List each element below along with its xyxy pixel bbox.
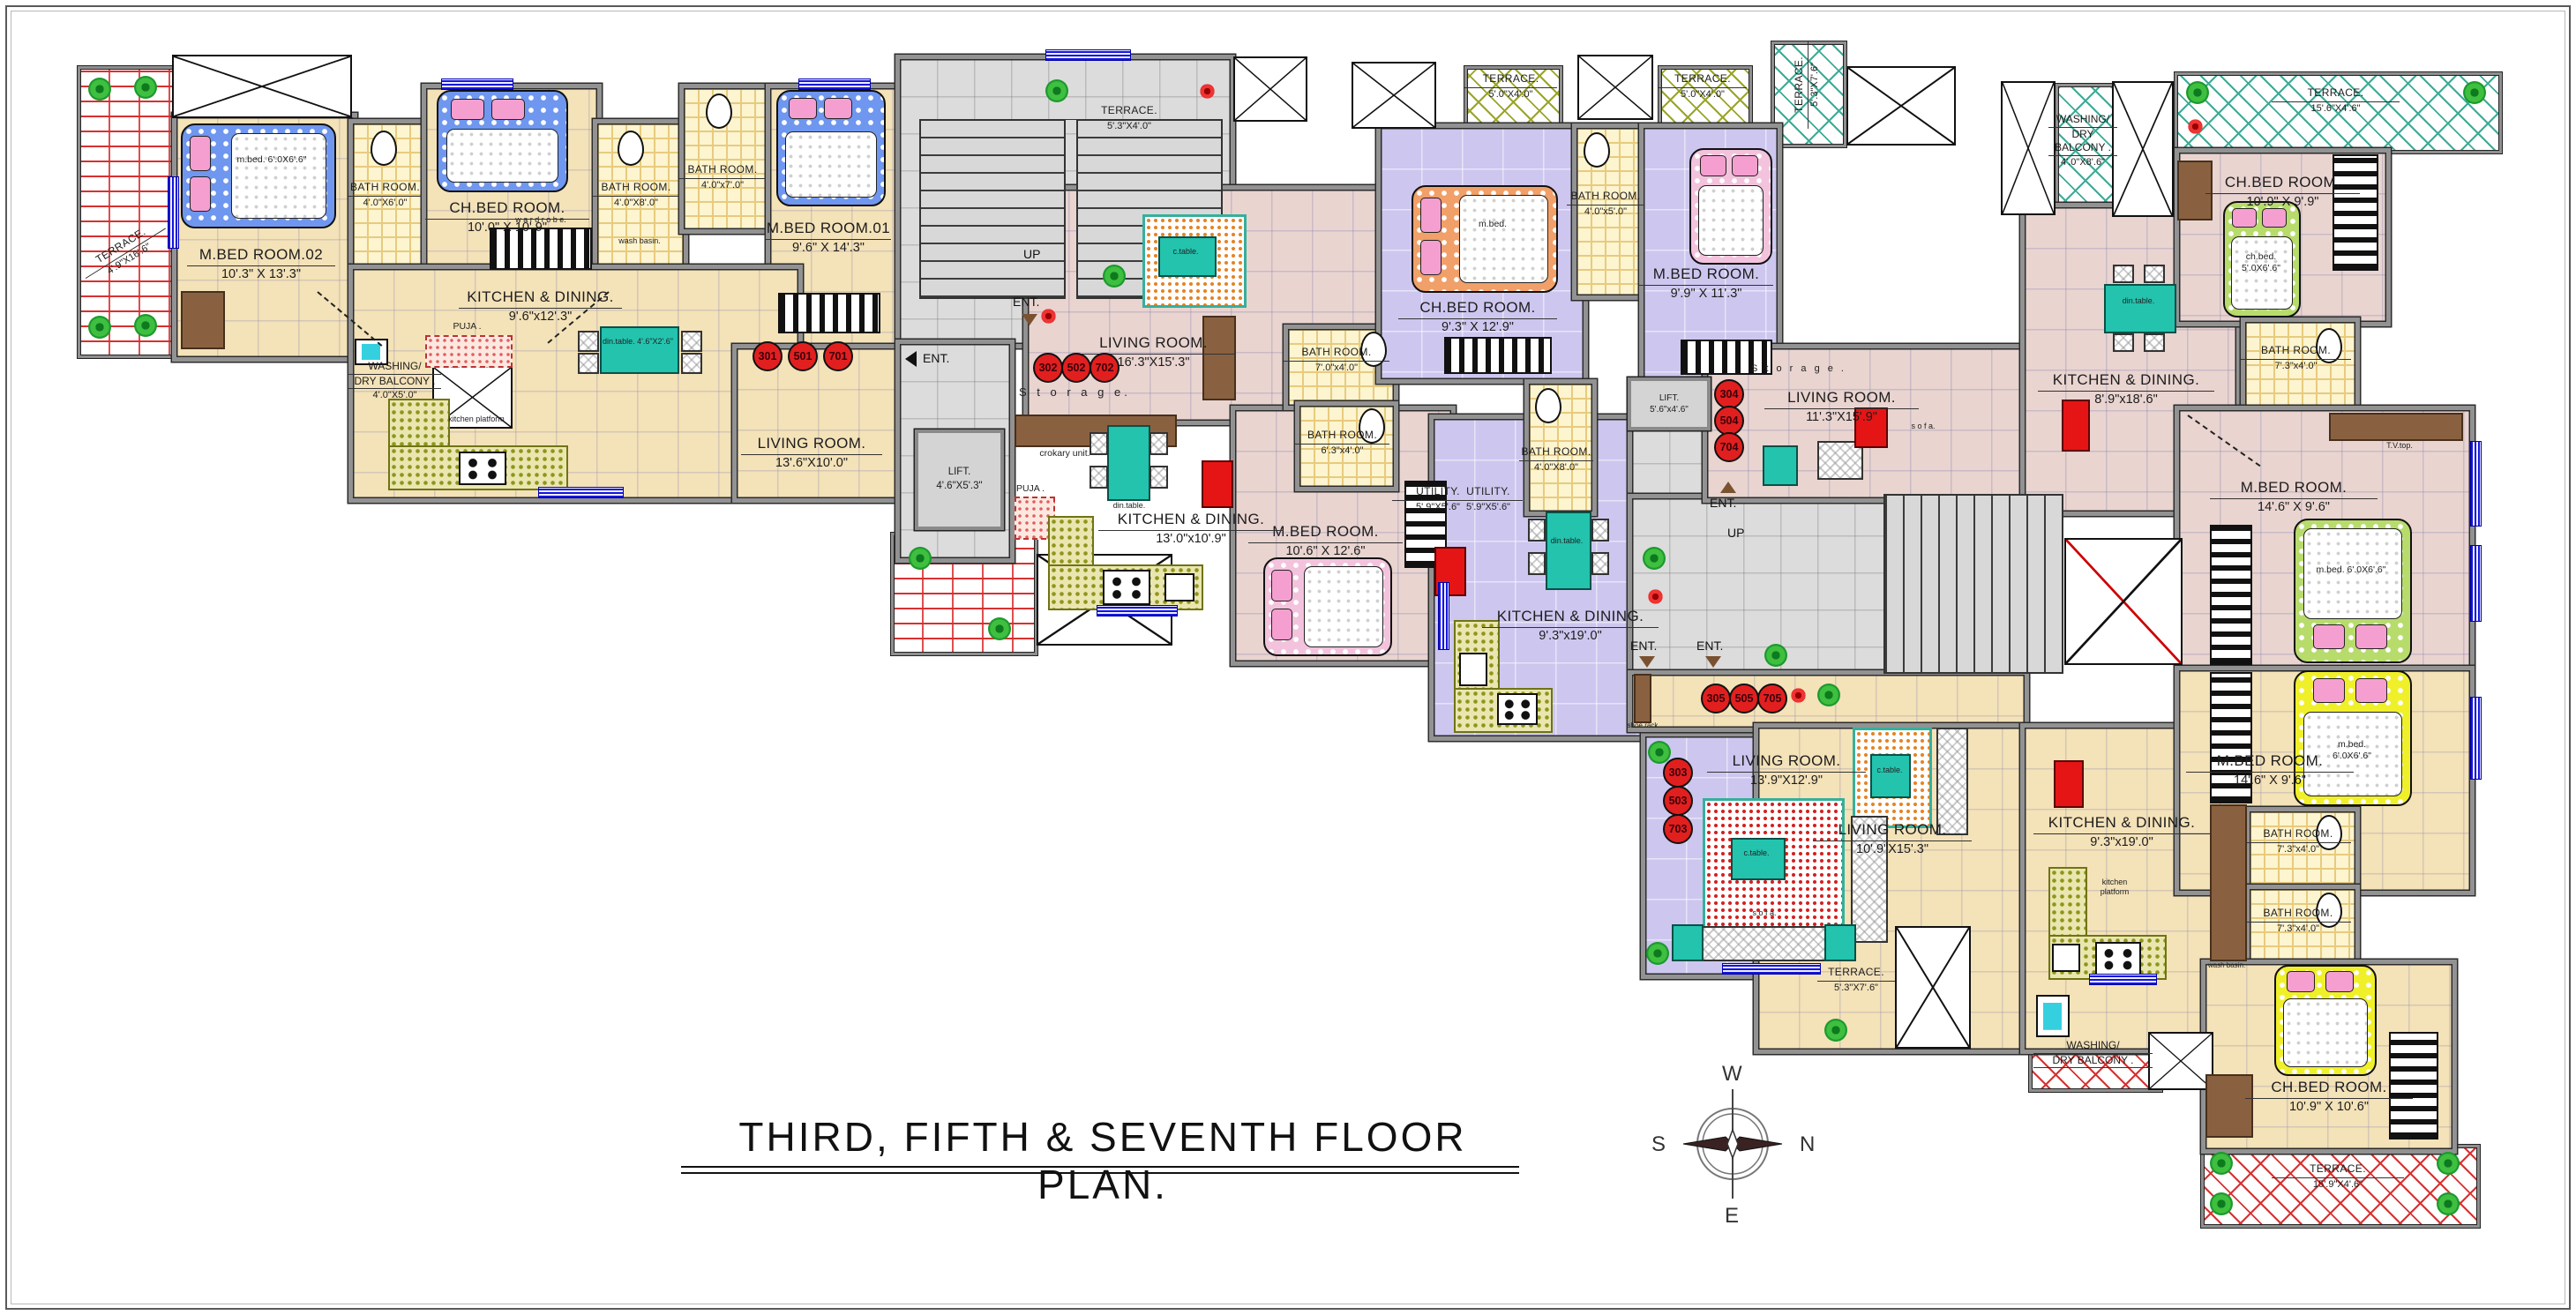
storage-label-302: S t o r a g e. [1019, 385, 1131, 399]
flower-icon [1791, 688, 1806, 703]
dining-table [1546, 512, 1591, 590]
dining-table [2104, 284, 2176, 333]
window [538, 487, 624, 498]
chair [2144, 265, 2165, 283]
window [1722, 963, 1821, 975]
room-label-kitchen-305: KITCHEN & DINING.9'.3"x19'.0" [2033, 813, 2210, 851]
entry-arrow-icon [1639, 656, 1655, 668]
up-label-left: UP [1023, 247, 1040, 261]
duct-shaft [1233, 56, 1307, 122]
room-label-bath1-301: BATH ROOM.4'.0"X6'.0" [348, 181, 422, 209]
sofa [1936, 728, 1968, 835]
unit-number-505: 505 [1729, 684, 1759, 714]
chair [2113, 333, 2134, 352]
room-label-kitchen-301: KITCHEN & DINING.9'.6"x12'.3" [459, 288, 622, 325]
plant-icon [1045, 79, 1068, 102]
room-label-chbed-304: CH.BED ROOM.10'.9" X 9'.9" [2205, 173, 2360, 211]
room-label-mbed01: M.BED ROOM.019'.6" X 14'.3" [766, 219, 891, 257]
unit-number-302: 302 [1033, 353, 1063, 383]
stove-icon [459, 452, 506, 485]
stove-icon [2095, 942, 2141, 975]
ent-label-stairs-left: ENT. [1013, 295, 1039, 309]
stove-icon [1103, 570, 1150, 605]
lobby-right [1628, 494, 1897, 679]
window [1438, 582, 1449, 650]
flower-icon [1648, 589, 1663, 604]
plant-icon [1643, 547, 1666, 570]
entry-arrow-icon [905, 351, 917, 367]
tv-unit [2329, 413, 2463, 441]
unit-number-304: 304 [1714, 379, 1744, 409]
plant-icon [134, 314, 157, 337]
room-label-kitchen-304: KITCHEN & DINING.8'.9"x18'.6" [2038, 370, 2214, 408]
unit-number-503: 503 [1663, 786, 1693, 816]
bed-chbed-303 [1412, 185, 1558, 293]
ent-label-right-core: ENT. [1710, 496, 1736, 510]
sofa-label: s o f a. [1897, 422, 1950, 431]
bed-label: m.bed. [1457, 219, 1528, 230]
wardrobe [2210, 525, 2252, 665]
plant-icon [1103, 265, 1126, 288]
room-label-bath1-303: BATH ROOM.4'.0"x5'.0" [1567, 190, 1644, 218]
fridge [2054, 760, 2084, 808]
window [2470, 441, 2482, 527]
plant-icon [134, 76, 157, 99]
sink-icon [2052, 944, 2080, 972]
dining-table-label: din.table. [1537, 536, 1597, 546]
window [1045, 49, 1131, 61]
flower-icon [1041, 309, 1056, 324]
unit-number-303: 303 [1663, 758, 1693, 788]
wardrobe-label: w a r d r o b e. [492, 215, 589, 225]
lift-left: LIFT.4'.6"X5'.3" [915, 430, 1004, 530]
duct-shaft [2112, 81, 2174, 217]
plant-icon [2437, 1192, 2460, 1215]
plant-icon [1646, 942, 1669, 965]
unit-number-705: 705 [1757, 684, 1787, 714]
center-table [1731, 838, 1786, 880]
duct-shaft [172, 55, 352, 118]
floor-plan-sheet: TERRACE.4'.9"X16'.6" m.bed. 6'.0X6'.6" M… [0, 0, 2576, 1315]
center-table [1763, 445, 1798, 486]
compass-west: W [1722, 1062, 1742, 1087]
dining-table [600, 326, 679, 374]
room-label-living-301: LIVING ROOM.13'.6"X10'.0" [741, 434, 882, 472]
duct-shaft [1577, 55, 1653, 120]
sofa [1701, 926, 1826, 961]
wardrobe [2333, 154, 2378, 271]
bed-chbed-305 [2274, 965, 2377, 1076]
shoe-rack-label: shoe rack [1625, 721, 1660, 730]
chair [1528, 552, 1546, 575]
plant-icon [88, 78, 111, 101]
wash-balcony-301-label: WASHING/DRY BALCONY .4'.0"X5'.0" [348, 360, 441, 401]
bed-mbed01 [776, 90, 886, 206]
toilet-icon [1535, 388, 1561, 423]
plant-icon [2463, 81, 2486, 104]
wardrobe [778, 293, 880, 333]
window [2470, 697, 2482, 780]
room-label-chbed-305: CH.BED ROOM.10'.9" X 10'.6" [2245, 1078, 2413, 1116]
entry-arrow-icon [1720, 482, 1736, 493]
puja-label-301: PUJA . [425, 321, 509, 332]
room-label-kitchen-302: KITCHEN & DINING.13'.0"x10'.9" [1098, 510, 1284, 548]
toilet-icon [1584, 132, 1610, 168]
duct-shaft [1846, 66, 1956, 146]
shoe-rack [1634, 674, 1651, 723]
shaft-red-x [2064, 538, 2183, 665]
room-label-bath1-305: BATH ROOM.7'.3"x4'.0" [2245, 827, 2351, 855]
chair [1149, 432, 1168, 455]
up-label-right: UP [1727, 526, 1744, 540]
duct-shaft [2001, 81, 2056, 215]
sink-icon [1459, 653, 1487, 686]
terrace-305-bottom-label: TERRACE.15'.9"X4'.6" [2272, 1162, 2404, 1191]
unit-number-501: 501 [788, 341, 818, 371]
terrace-304-top-label: TERRACE.15'.6"X4'.6" [2272, 86, 2400, 115]
room-label-bath1-302: BATH ROOM.7'.0"x4'.0" [1284, 346, 1389, 374]
dining-table [1107, 425, 1150, 501]
unit-number-504: 504 [1714, 406, 1744, 436]
kitchen-platform-label: kitchen platform [2087, 878, 2142, 898]
room-label-chbed-303: CH.BED ROOM.9'.3" X 12'.9" [1398, 298, 1557, 336]
chair [1149, 466, 1168, 489]
plant-icon [2437, 1152, 2460, 1175]
room-label-bath3-301: BATH ROOM.4'.0"x7'.0" [679, 163, 766, 191]
chair [578, 331, 599, 352]
bed-label: m.bed. 6'.0X6'.6" [2318, 739, 2385, 762]
plant-icon [2186, 81, 2209, 104]
side-table [1824, 924, 1856, 961]
compass-east: E [1725, 1204, 1739, 1229]
window [1097, 605, 1178, 616]
dining-table-label: din.table. [2107, 296, 2170, 306]
room-label-bath2-303: BATH ROOM.4'.0"X8'.0" [1519, 445, 1593, 474]
plant-icon [2210, 1152, 2233, 1175]
chair [1090, 466, 1108, 489]
bed-label: m.bed. 6'.0X6'.6" [236, 154, 307, 166]
unit-number-701: 701 [823, 341, 853, 371]
terrace-303-1-label: TERRACE.5'.0"X4'.0" [1464, 72, 1557, 101]
chair [578, 353, 599, 374]
fridge [1202, 460, 1233, 508]
bed-mbed-302 [1263, 557, 1392, 656]
window [798, 78, 871, 90]
unit-number-502: 502 [1061, 353, 1091, 383]
room-label-bath2-302: BATH ROOM.6'.3"x4'.0" [1295, 429, 1389, 457]
washing-machine-icon [2036, 995, 2070, 1037]
room-label-bath-304: BATH ROOM.7'.3"x4'.0" [2241, 344, 2351, 372]
study-desk [181, 291, 225, 349]
center-table [1870, 754, 1911, 798]
terrace-303-2-label: TERRACE.5'.0"X4'.0" [1659, 72, 1747, 101]
utility-303-label: UTILITY.5'.9"X5'.6" [1454, 485, 1523, 513]
terrace-304-side-label: TERRACE.5'.3"X7'.6" [1793, 41, 1821, 129]
room-label-bath2-305: BATH ROOM.7'.3"x4'.0" [2245, 907, 2351, 935]
wardrobe [1444, 337, 1552, 374]
ent-label-bottom-2: ENT. [1696, 639, 1723, 653]
wash-basin-counter [2210, 804, 2247, 961]
unit-number-702: 702 [1090, 353, 1120, 383]
stair-flight [919, 119, 1066, 299]
room-label-living-305: LIVING ROOM.10'.9"X15'.3" [1813, 820, 1972, 858]
plant-icon [1824, 1019, 1847, 1042]
unit-number-704: 704 [1714, 432, 1744, 462]
plant-icon [88, 316, 111, 339]
plant-icon [988, 617, 1011, 640]
chair [1591, 552, 1609, 575]
toilet-icon [706, 93, 732, 129]
duct-shaft [1895, 926, 1971, 1049]
center-table-label: c.table. [1160, 247, 1211, 257]
plant-icon [1764, 644, 1787, 667]
crokary-label: crokary unit. [1016, 448, 1113, 460]
drawing-title: THIRD, FIFTH & SEVENTH FLOOR PLAN. [706, 1113, 1500, 1208]
flower-icon [1200, 84, 1215, 99]
storage-label-right-core: S t o r a g e . [1751, 363, 1846, 374]
flower-icon [2188, 119, 2203, 134]
room-label-mbed-303: M.BED ROOM.9'.9" X 11'.3" [1639, 265, 1773, 303]
toilet-icon [618, 131, 644, 166]
compass-rose [1676, 1087, 1789, 1200]
compass-north: N [1800, 1132, 1815, 1157]
toilet-icon [371, 131, 397, 166]
tv-label: T.V.top. [2373, 441, 2426, 451]
title-underline [681, 1166, 1519, 1174]
kitchen-platform-label: kitchen platform [448, 415, 505, 424]
room-label-mbed02: M.BED ROOM.0210'.3" X 13'.3" [187, 245, 335, 283]
terrace-305-side-label: TERRACE.5'.3"X7'.6" [1817, 966, 1895, 994]
room-label-bath2-301: BATH ROOM.4'.0"X8'.0" [593, 181, 679, 209]
room-label-living-304: LIVING ROOM.11'.3"X15'.9" [1764, 388, 1919, 426]
compass-south: S [1651, 1132, 1666, 1157]
center-table-label: c.table. [1868, 766, 1911, 775]
unit-number-301: 301 [753, 341, 783, 371]
terrace-302-label: TERRACE.5'.3"X4'.0" [1063, 104, 1195, 132]
wash-balcony-305-label: WASHING/DRY BALCONY . [2033, 1039, 2153, 1068]
entry-arrow-icon [1705, 656, 1721, 668]
ent-label-bottom-1: ENT. [1630, 639, 1657, 653]
ent-label-lobby-left: ENT. [923, 351, 949, 365]
window [2470, 545, 2482, 622]
puja-label-302: PUJA . [1004, 483, 1057, 495]
bed-mbed02 [181, 123, 336, 228]
bed-label: ch.bed. 5'.0X6'.6" [2230, 251, 2292, 274]
wash-basin-label: wash basin. [618, 236, 662, 246]
bed-chbed-301 [437, 90, 568, 192]
wash-basin-label: wash basin. [2204, 961, 2250, 970]
duct-shaft [1352, 62, 1436, 129]
chair [2144, 333, 2165, 352]
center-table-label: c.table. [1731, 848, 1782, 858]
unit-number-305: 305 [1701, 684, 1731, 714]
lift-right: LIFT.5'.6"x4'.6" [1628, 377, 1711, 430]
entry-arrow-icon [1022, 314, 1037, 325]
chair [681, 353, 702, 374]
plant-icon [2210, 1192, 2233, 1215]
room-label-living-303: LIVING ROOM.13'.9"X12'.9" [1707, 751, 1866, 789]
chair [681, 331, 702, 352]
sink-icon [1164, 573, 1194, 601]
room-label-mbed-304: M.BED ROOM.14'.6" X 9'.6" [2210, 478, 2378, 516]
bed-mbed-304 [2294, 519, 2412, 663]
terrace-301 [78, 66, 177, 358]
window [441, 78, 513, 90]
side-table [1672, 924, 1704, 961]
stove-icon [1497, 693, 1538, 725]
bed-label: m.bed. 6'.0X6'.6" [2316, 564, 2386, 576]
plant-icon [1817, 684, 1840, 706]
plant-icon [909, 547, 932, 570]
dining-table-label: din.table. 4'.6"X2'.6" [602, 337, 674, 347]
chair [2113, 265, 2134, 283]
bed-mbed-303 [1689, 148, 1772, 265]
unit-number-703: 703 [1663, 814, 1693, 844]
window [2089, 974, 2157, 985]
sofa-label: s o f a. [1738, 908, 1791, 918]
wash-balcony-304-label: WASHING/DRY BALCONY .4'.0"X8'.6" [2048, 113, 2117, 168]
duct-shaft [2148, 1032, 2213, 1090]
stair-flight-right [1883, 494, 2063, 674]
